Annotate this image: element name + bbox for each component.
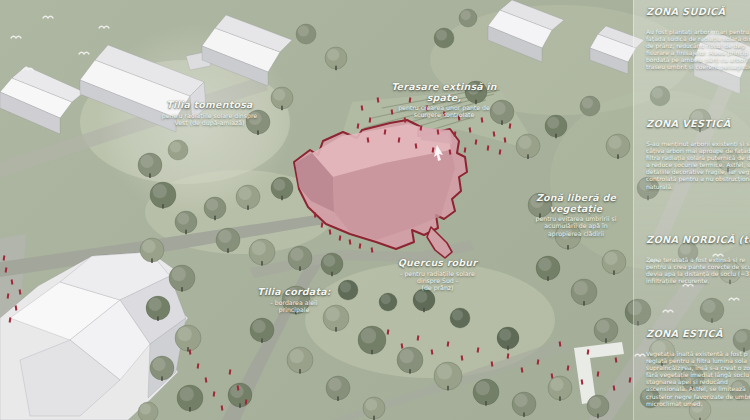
- zone-heading: ZONA ESTICĂ: [646, 328, 750, 339]
- tree-highlight: [582, 98, 593, 109]
- tree-highlight: [608, 136, 621, 149]
- tree-trunk: [605, 338, 607, 343]
- tree-highlight: [152, 358, 165, 371]
- tree-highlight: [596, 320, 609, 333]
- tree-highlight: [153, 184, 167, 198]
- tree-trunk: [447, 386, 449, 391]
- person-marker: [197, 363, 200, 368]
- tree-highlight: [273, 89, 285, 101]
- tree-trunk: [149, 173, 151, 178]
- bird-icon: [79, 52, 89, 54]
- person-marker: [464, 147, 467, 152]
- tree-trunk: [409, 369, 411, 374]
- tree-trunk: [162, 204, 164, 209]
- tree-highlight: [381, 294, 391, 304]
- tree-highlight: [461, 10, 471, 20]
- tree-trunk: [335, 327, 337, 332]
- person-marker: [521, 367, 524, 372]
- tree-highlight: [452, 310, 463, 321]
- tree-highlight: [290, 248, 303, 261]
- zone-heading: ZONA SUDICĂ: [646, 6, 750, 17]
- tree-trunk: [185, 230, 187, 235]
- tree-trunk: [527, 154, 529, 159]
- tree-trunk: [547, 276, 549, 281]
- tree-trunk: [555, 134, 557, 139]
- tree-trunk: [539, 213, 541, 218]
- tree-trunk: [501, 120, 503, 125]
- zone-body: Vegetația înaltă existentă a fost p regl…: [646, 350, 750, 407]
- tree-trunk: [157, 316, 159, 321]
- tree-trunk: [299, 369, 301, 374]
- tree-trunk: [423, 308, 425, 313]
- tree-highlight: [361, 328, 376, 343]
- tree-trunk: [567, 245, 569, 250]
- tree-highlight: [550, 378, 563, 391]
- tree-highlight: [589, 397, 601, 409]
- tree-trunk: [295, 310, 297, 315]
- tree-highlight: [467, 83, 479, 95]
- tree-highlight: [323, 255, 335, 267]
- tree-highlight: [252, 241, 266, 255]
- tree-highlight: [514, 394, 527, 407]
- tree-trunk: [331, 272, 333, 277]
- tree-trunk: [261, 338, 263, 343]
- tree-highlight: [492, 102, 505, 115]
- tree-highlight: [140, 155, 153, 168]
- tree-highlight: [285, 288, 300, 303]
- site-plan: Tilia tomentosa pentru radiațiile solare…: [0, 0, 750, 420]
- tree-highlight: [558, 225, 572, 239]
- tree-trunk: [247, 205, 249, 210]
- zone-section-estica: ZONA ESTICĂ Vegetația înaltă existentă a…: [646, 328, 750, 407]
- tree-highlight: [574, 281, 588, 295]
- tree-trunk: [613, 270, 615, 275]
- tree-highlight: [328, 378, 341, 391]
- tree-highlight: [340, 282, 351, 293]
- zone-section-vestica: ZONA VESTICĂ S-au menținut arborii exist…: [646, 118, 750, 190]
- tree-highlight: [538, 258, 551, 271]
- tree-trunk: [299, 266, 301, 271]
- person-marker: [475, 139, 478, 144]
- tree-highlight: [298, 26, 309, 37]
- tree-highlight: [518, 136, 531, 149]
- tree-highlight: [290, 349, 304, 363]
- tree-highlight: [140, 404, 151, 415]
- person-marker: [359, 243, 362, 248]
- tree-trunk: [261, 261, 263, 266]
- person-marker: [349, 239, 352, 244]
- tree-highlight: [499, 329, 511, 341]
- tree-highlight: [273, 179, 285, 191]
- tree-trunk: [151, 258, 153, 263]
- tree-highlight: [177, 213, 189, 225]
- tree-trunk: [337, 396, 339, 401]
- tree-highlight: [252, 320, 265, 333]
- tree-highlight: [326, 307, 340, 321]
- tree-trunk: [189, 407, 191, 412]
- context-building-southwest: [0, 252, 188, 420]
- zone-section-nordica: ZONA NORDICĂ (terasată) Zona terasată a …: [646, 234, 750, 284]
- person-marker: [487, 145, 490, 150]
- tree-highlight: [415, 291, 427, 303]
- tree-highlight: [604, 252, 617, 265]
- tree-highlight: [437, 364, 452, 379]
- tree-trunk: [187, 347, 189, 352]
- tree-highlight: [170, 142, 181, 153]
- person-marker: [205, 377, 208, 382]
- person-marker: [551, 373, 554, 378]
- person-marker: [213, 391, 216, 396]
- zone-body: S-au menținut arborii existenți și s-a c…: [646, 140, 750, 190]
- person-marker: [597, 371, 600, 376]
- tree-trunk: [239, 403, 241, 408]
- zone-heading: ZONA VESTICĂ: [646, 118, 750, 129]
- tree-trunk: [335, 66, 337, 71]
- zone-body: Zona terasată a fost extinsă și re pentr…: [646, 256, 750, 284]
- tree-trunk: [617, 154, 619, 159]
- tree-highlight: [206, 199, 218, 211]
- person-marker: [499, 149, 502, 154]
- tree-highlight: [365, 399, 377, 411]
- bird-icon: [43, 16, 53, 18]
- tree-trunk: [475, 100, 477, 105]
- tree-highlight: [142, 240, 155, 253]
- zone-legend: ZONA SUDICĂ Au fost plantați arbori mari…: [646, 0, 750, 420]
- zone-heading: ZONA NORDICĂ (terasată): [646, 234, 750, 245]
- tree-highlight: [400, 349, 414, 363]
- tree-highlight: [248, 112, 261, 125]
- tree-highlight: [476, 381, 490, 395]
- tree-highlight: [436, 30, 447, 41]
- tree-highlight: [172, 267, 186, 281]
- person-marker: [567, 365, 570, 370]
- tree-highlight: [180, 387, 194, 401]
- bird-icon: [11, 36, 21, 38]
- bird-icon: [99, 26, 109, 28]
- zone-section-sudica: ZONA SUDICĂ Au fost plantați arbori mari…: [646, 6, 750, 71]
- tree-highlight: [218, 230, 231, 243]
- tree-trunk: [257, 130, 259, 135]
- tree-highlight: [327, 49, 339, 61]
- tree-trunk: [281, 106, 283, 111]
- tree-trunk: [507, 346, 509, 351]
- tree-trunk: [371, 350, 373, 355]
- tree-trunk: [523, 412, 525, 417]
- tree-trunk: [227, 248, 229, 253]
- tree-trunk: [281, 196, 283, 201]
- tree-trunk: [485, 401, 487, 406]
- person-marker: [329, 229, 332, 234]
- tree-trunk: [373, 416, 375, 420]
- person-marker: [229, 369, 232, 374]
- tree-highlight: [238, 187, 251, 200]
- person-marker: [615, 357, 618, 362]
- tree-trunk: [597, 414, 599, 419]
- tree-highlight: [148, 298, 161, 311]
- person-marker: [221, 405, 224, 410]
- highlighted-building: [294, 120, 467, 258]
- zone-body: Au fost plantați arbori mari pentru fața…: [646, 28, 750, 71]
- tree-trunk: [181, 287, 183, 292]
- tree-highlight: [178, 327, 192, 341]
- person-marker: [339, 235, 342, 240]
- tree-highlight: [547, 117, 559, 129]
- tree-trunk: [214, 216, 216, 221]
- tree-highlight: [530, 195, 543, 208]
- tree-trunk: [161, 376, 163, 381]
- tree-trunk: [559, 396, 561, 401]
- tree-trunk: [583, 301, 585, 306]
